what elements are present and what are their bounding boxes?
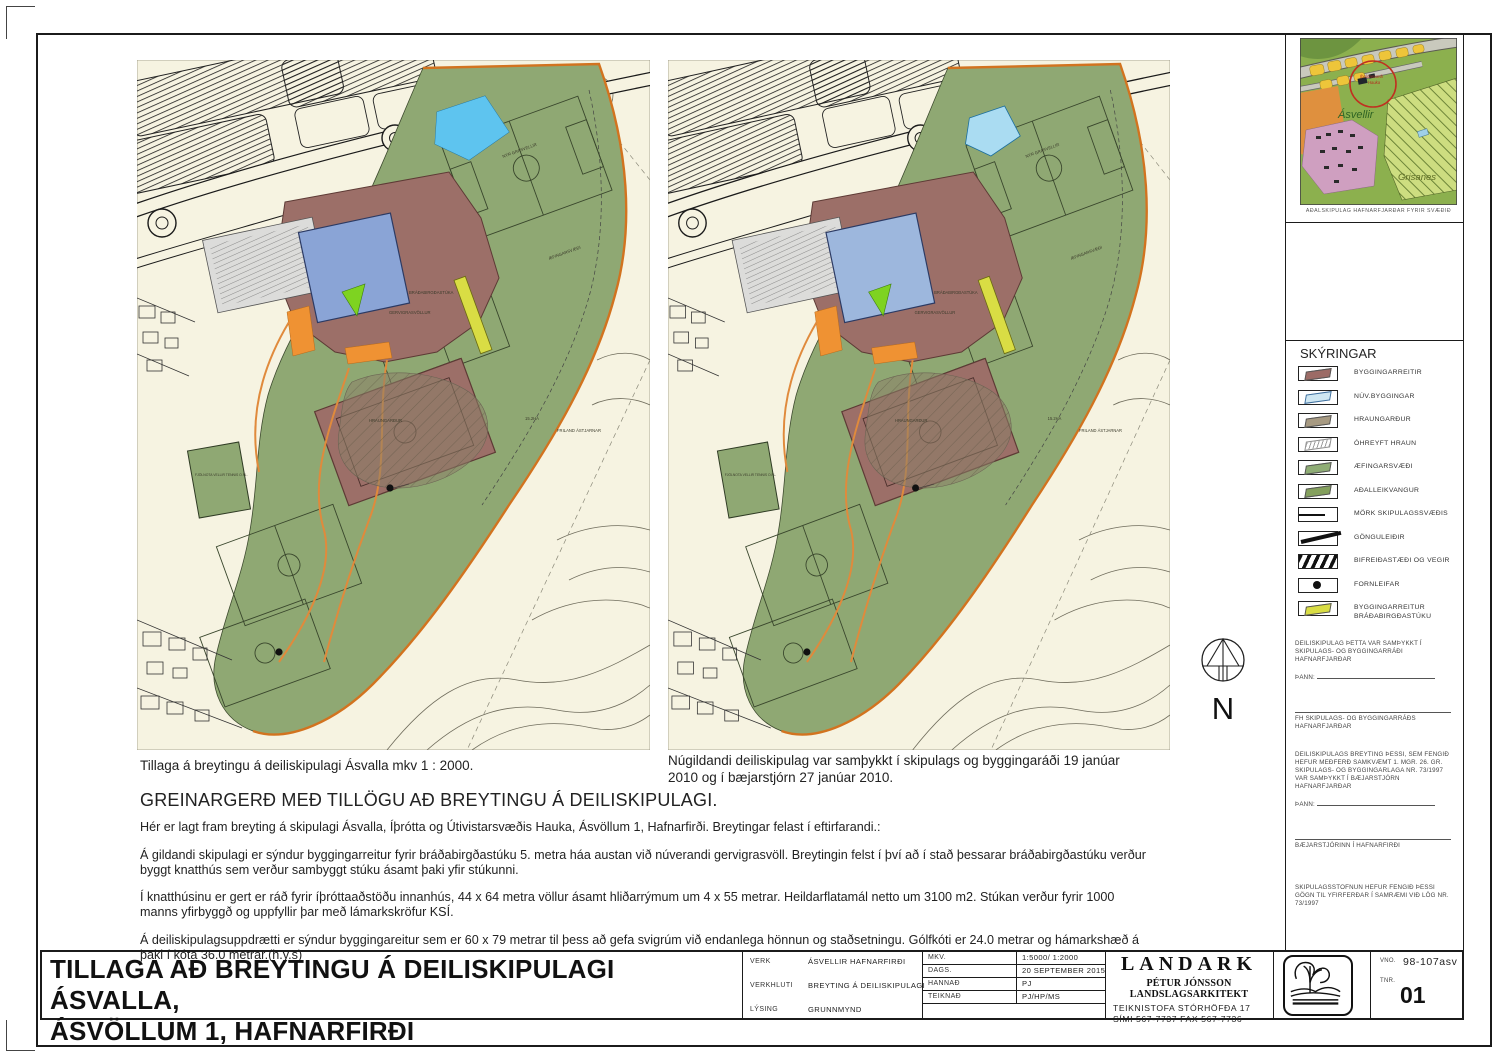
svg-text:15.2HA: 15.2HA [1048, 416, 1062, 421]
svg-text:FJÖLNOTA VELLIR TENNIS O.FL.: FJÖLNOTA VELLIR TENNIS O.FL. [195, 473, 248, 477]
signature-line [1295, 702, 1451, 713]
table-row-line [922, 977, 1105, 978]
company-block: LANDARK PÉTUR JÓNSSON LANDSLAGSARKITEKT … [1105, 953, 1273, 1025]
legend-item: NÚV.BYGGINGAR [1298, 390, 1460, 405]
archaeology-swatch [1298, 578, 1338, 593]
landark-logo-icon [1285, 957, 1346, 1009]
main-stadium-swatch [1298, 484, 1338, 499]
left-map-caption: Tillaga á breytingu á deiliskipulagi Ásv… [140, 757, 640, 774]
report-block: GREINARGERÐ MEÐ TILLÖGU AÐ BREYTINGU Á D… [140, 790, 1150, 963]
map-current-drawing: NÝR GRASVELLIR ÆFINGARSVÆÐI GERVIGRASVÖL… [668, 60, 1170, 750]
field-hannad-value: PJ [1022, 979, 1032, 988]
approval-text: DEILISKIPULAGS BREYTING ÞESSI, SEM FENGI… [1295, 751, 1451, 791]
report-paragraph: Á gildandi skipulagi er sýndur byggingar… [140, 848, 1150, 878]
map-proposal-drawing: NÝR GRASVELLIR ÆFINGARSVÆÐI GERVIGRASVÖL… [137, 60, 650, 750]
legend-item: ÓHREYFT HRAUN [1298, 437, 1460, 452]
svg-text:GERVIGRASVÖLLUR: GERVIGRASVÖLLUR [389, 310, 431, 315]
parking-roads-swatch [1298, 554, 1338, 569]
field-teiknad-value: PJ/HP/MS [1022, 992, 1060, 1001]
inset-map-drawing: Ásvellir Grisanes Íþróttasvæði Hauka [1300, 38, 1457, 205]
existing-buildings-swatch [1298, 390, 1338, 405]
report-paragraph: Hér er lagt fram breyting á skipulagi Ás… [140, 820, 1150, 835]
report-heading: GREINARGERÐ MEÐ TILLÖGU AÐ BREYTINGU Á D… [140, 790, 1150, 811]
company-subtitle: PÉTUR JÓNSSON LANDSLAGSARKITEKT [1105, 978, 1273, 1000]
map-proposal: NÝR GRASVELLIR ÆFINGARSVÆÐI GERVIGRASVÖL… [137, 60, 650, 750]
legend-item: BIFREIÐASTÆÐI OG VEGIR [1298, 554, 1460, 569]
inset-map: Ásvellir Grisanes Íþróttasvæði Hauka AÐA… [1300, 38, 1457, 205]
approval-text: SKIPULAGSSTOFNUN HEFUR FENGIÐ ÞESSI GÖGN… [1295, 884, 1451, 908]
legend-title: SKÝRINGAR [1300, 346, 1377, 361]
sheet-title-line2: ÁSVÖLLUM 1, HAFNARFIRÐI [50, 1016, 740, 1047]
svg-text:FRILAND ÁSTJARNAR: FRILAND ÁSTJARNAR [557, 428, 601, 433]
fold-mark-bottom-left [6, 1020, 35, 1051]
report-paragraph: Í knatthúsinu er gert er ráð fyrir íþrót… [140, 890, 1150, 920]
north-arrow: N [1197, 634, 1249, 722]
company-logo [1283, 955, 1353, 1016]
svg-text:HRAUNGARÐUR: HRAUNGARÐUR [369, 418, 402, 423]
titleblock-divider [1273, 950, 1274, 1018]
company-address: TEIKNISTOFA STÓRHÖFÐA 17 [1105, 1003, 1273, 1014]
field-lysing-label: LÝSING [750, 1006, 778, 1013]
sheet-title-line1: TILLAGA AÐ BREYTINGU Á DEILISKIPULAGI ÁS… [50, 954, 740, 1016]
company-name: LANDARK [1105, 953, 1273, 976]
inset-label-grisanes: Grisanes [1398, 172, 1436, 183]
vno-value: 98-107asv [1403, 956, 1457, 968]
compass-icon [1197, 634, 1249, 686]
legend-item: HRAUNGARÐUR [1298, 413, 1460, 428]
training-area-swatch [1298, 460, 1338, 475]
field-lysing-value: GRUNNMYND [808, 1005, 862, 1014]
field-dags-value: 20 SEPTEMBER 2015 [1022, 966, 1105, 975]
undisturbed-lava-swatch [1298, 437, 1338, 452]
svg-text:GERVIGRASVÖLLUR: GERVIGRASVÖLLUR [915, 310, 956, 315]
legend-item: ÆFINGARSVÆÐI [1298, 460, 1460, 475]
table-col-line [1016, 950, 1017, 1003]
legend-column-right-border [1463, 33, 1464, 1018]
approval-signatory: FH SKIPULAGS- OG BYGGINGARRÁÐS HAFNARFJA… [1295, 715, 1451, 731]
svg-text:FRILAND ÁSTJARNAR: FRILAND ÁSTJARNAR [1079, 428, 1122, 433]
legend-item: FORNLEIFAR [1298, 578, 1460, 593]
legend-item: BYGGINGARREITIR [1298, 366, 1460, 381]
field-verk-label: VERK [750, 958, 771, 965]
table-row-line [922, 990, 1105, 991]
approval-signatory: BÆJARSTJÓRINN Í HAFNARFIRÐI [1295, 842, 1451, 850]
table-row-line [922, 964, 1105, 965]
svg-text:Hauka: Hauka [1368, 80, 1381, 85]
legend-column-divider [1285, 340, 1463, 341]
tnr-value: 01 [1400, 982, 1426, 1009]
company-phone: SÍMI 567-7737 FAX 567-7736 [1105, 1014, 1273, 1025]
svg-text:HRAUNGARÐUR: HRAUNGARÐUR [895, 418, 927, 423]
titleblock-divider [1370, 950, 1371, 1018]
vno-label: VNO. [1380, 958, 1396, 964]
svg-text:BRÁÐABIRGÐASTÚKA: BRÁÐABIRGÐASTÚKA [409, 290, 454, 295]
right-map-caption: Núgildandi deiliskipulag var samþykkt í … [668, 752, 1138, 786]
svg-text:15.2HA: 15.2HA [525, 416, 539, 421]
field-hannad-label: HANNAÐ [928, 980, 960, 987]
legend-column-divider [1285, 222, 1463, 223]
sheet-title: TILLAGA AÐ BREYTINGU Á DEILISKIPULAGI ÁS… [50, 954, 740, 1047]
map-current: NÝR GRASVELLIR ÆFINGARSVÆÐI GERVIGRASVÖL… [668, 60, 1170, 750]
svg-text:Íþróttasvæði: Íþróttasvæði [1360, 74, 1384, 79]
approval-text: DEILISKIPULAG ÞETTA VAR SAMÞYKKT Í SKIPU… [1295, 640, 1451, 664]
tennis-courts-area [187, 442, 250, 518]
walking-paths-swatch [1298, 531, 1338, 546]
inset-label-asvellir: Ásvellir [1337, 108, 1375, 121]
field-mkv-label: MKV. [928, 954, 946, 961]
drawing-sheet: NÝR GRASVELLIR ÆFINGARSVÆÐI GERVIGRASVÖL… [0, 0, 1500, 1057]
approval-date-line: ÞANN: [1295, 674, 1451, 682]
lava-wall-swatch [1298, 413, 1338, 428]
building-plots-swatch [1298, 366, 1338, 381]
approval-date-line: ÞANN: [1295, 801, 1451, 809]
legend-item: AÐALLEIKVANGUR [1298, 484, 1460, 499]
field-dags-label: DAGS. [928, 967, 952, 974]
field-verkhluti-label: VERKHLUTI [750, 982, 793, 989]
tnr-label: TNR. [1380, 978, 1395, 984]
fold-mark-top-left [6, 6, 35, 39]
inset-map-caption: AÐALSKIPULAG HAFNARFJARÐAR FYRIR SVÆÐIÐ [1300, 208, 1457, 214]
field-mkv-value: 1:5000/ 1:2000 [1022, 953, 1078, 962]
temp-stand-swatch [1298, 601, 1338, 616]
legend-column-left-border [1285, 33, 1286, 950]
signature-line [1295, 829, 1451, 840]
svg-text:BRÁÐABIRGÐASTÚKA: BRÁÐABIRGÐASTÚKA [934, 290, 978, 295]
tennis-courts-area [717, 442, 779, 518]
legend: BYGGINGARREITIR NÚV.BYGGINGAR HRAUNGARÐU… [1298, 366, 1460, 630]
legend-item: GÖNGULEIÐIR [1298, 531, 1460, 546]
legend-item: BYGGINGARREITUR BRÁÐABIRGÐASTÚKU [1298, 601, 1460, 621]
plan-boundary-swatch [1298, 507, 1338, 522]
field-teiknad-label: TEIKNAÐ [928, 993, 961, 1000]
approval-block: DEILISKIPULAG ÞETTA VAR SAMÞYKKT Í SKIPU… [1295, 640, 1451, 908]
table-row-line [922, 1003, 1105, 1004]
north-label: N [1197, 691, 1249, 727]
field-verkhluti-value: BREYTING Á DEILISKIPULAGI [808, 981, 925, 990]
svg-text:FJÖLNOTA VELLIR TENNIS O.FL.: FJÖLNOTA VELLIR TENNIS O.FL. [725, 473, 777, 477]
titleblock-divider [742, 950, 743, 1018]
field-verk-value: ÁSVELLIR HAFNARFIRÐI [808, 957, 905, 966]
legend-item: MÖRK SKIPULAGSSVÆÐIS [1298, 507, 1460, 522]
